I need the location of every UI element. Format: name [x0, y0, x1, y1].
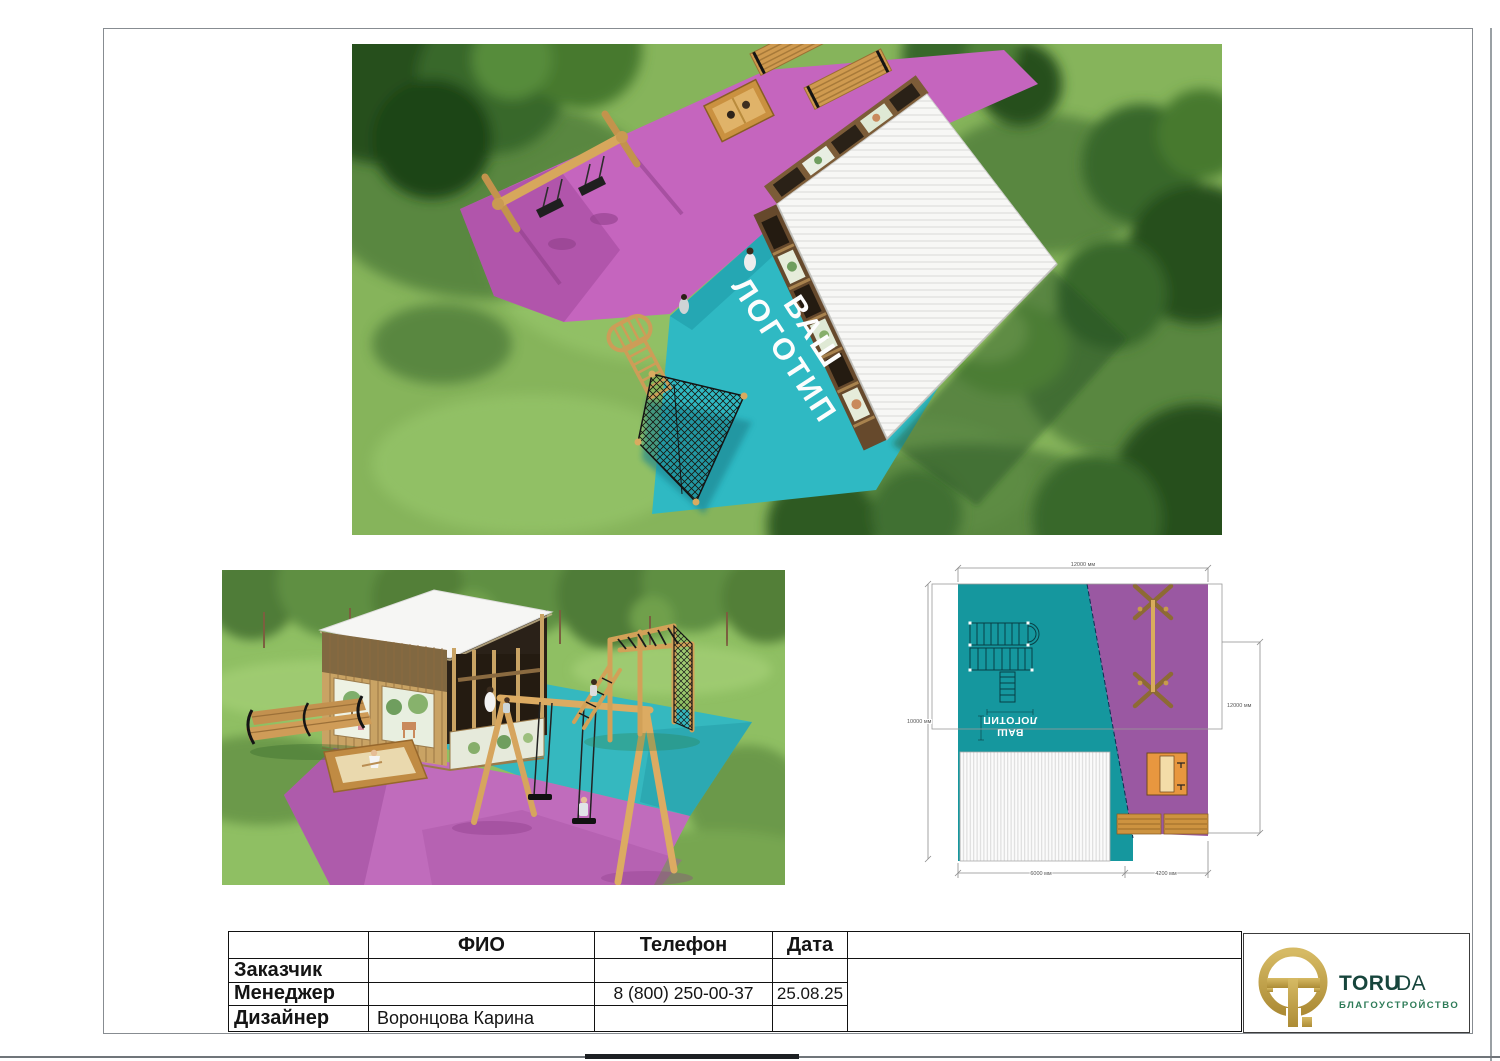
dim-top: 12000 мм — [1071, 562, 1096, 568]
dim-right: 12000 мм — [1227, 703, 1252, 709]
toruda-logo-icon — [1263, 952, 1323, 1027]
customer-date — [773, 959, 848, 983]
customer-fio — [369, 959, 595, 983]
titleblock-table: ФИО Телефон Дата Заказчик Менеджер 8 (80… — [228, 931, 1242, 1032]
brand-tagline: БЛАГОУСТРОЙСТВО — [1339, 999, 1459, 1011]
designer-date — [773, 1006, 848, 1031]
plan-drawing: ВАШ ЛОГОТИП — [905, 556, 1277, 892]
perspective-scene — [222, 570, 785, 885]
swing-seat — [528, 794, 552, 800]
company-logo-box: TORU DA БЛАГОУСТРОЙСТВО — [1243, 933, 1470, 1033]
dim-bottom-right: 4200 мм — [1155, 871, 1177, 877]
render-perspective-view — [222, 570, 785, 885]
customer-phone — [595, 959, 773, 983]
row-label-customer: Заказчик — [229, 959, 369, 983]
header-fio: ФИО — [369, 932, 595, 959]
plan-scene: ВАШ ЛОГОТИП — [905, 556, 1277, 892]
child-figure — [581, 797, 587, 803]
art-panel — [382, 686, 434, 748]
company-logo: TORU DA БЛАГОУСТРОЙСТВО — [1244, 934, 1469, 1032]
manager-date: 25.08.25 — [773, 983, 848, 1007]
climbing-net-side — [674, 626, 692, 730]
dim-bottom-left: 6000 мм — [1030, 871, 1052, 877]
row-label-manager: Менеджер — [229, 983, 369, 1007]
row-label-designer: Дизайнер — [229, 1006, 369, 1031]
notes-cell — [848, 959, 1241, 1031]
next-sheet-edge-dark — [585, 1054, 799, 1059]
manager-phone: 8 (800) 250-00-37 — [595, 983, 773, 1007]
render-aerial-view: ВАШ ЛОГОТИП — [352, 44, 1222, 535]
header-notes — [848, 932, 1241, 959]
brand-name-light: DA — [1396, 972, 1426, 995]
manager-fio — [369, 983, 595, 1007]
child-figure — [591, 679, 597, 685]
child-figure — [371, 750, 377, 756]
header-phone: Телефон — [595, 932, 773, 959]
brand-name-bold: TORU — [1339, 972, 1400, 995]
viewer-right-edge-line — [1490, 28, 1492, 1061]
dim-left: 10000 мм — [907, 719, 932, 725]
logo-placeholder-line2: ЛОГОТИП — [983, 714, 1038, 726]
designer-fio: Воронцова Карина — [369, 1006, 595, 1031]
header-date: Дата — [773, 932, 848, 959]
logo-placeholder-line1: ВАШ — [997, 726, 1024, 738]
designer-phone — [595, 1006, 773, 1031]
plan-picnic-table — [1147, 753, 1187, 795]
swing-seat — [572, 818, 596, 824]
aerial-scene: ВАШ ЛОГОТИП — [352, 44, 1222, 535]
titleblock-corner-cell — [229, 932, 369, 959]
plan-pavilion-roof — [960, 752, 1110, 861]
